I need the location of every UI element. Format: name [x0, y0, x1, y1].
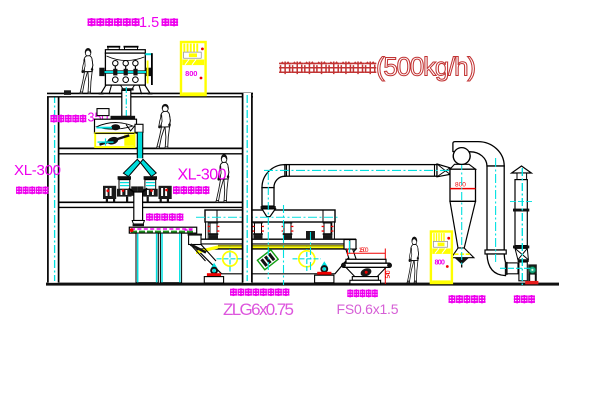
svg-text:800: 800 [455, 181, 466, 188]
svg-text:XL-300: XL-300 [14, 162, 61, 179]
svg-text:ZLG6x0.75: ZLG6x0.75 [223, 300, 294, 319]
svg-text:(500kg/h): (500kg/h) [376, 52, 476, 82]
svg-text:FS0.6x1.5: FS0.6x1.5 [337, 301, 399, 317]
svg-text:800: 800 [434, 258, 445, 267]
svg-text:540: 540 [386, 270, 392, 279]
svg-text:800: 800 [185, 69, 197, 78]
svg-text:1500: 1500 [359, 248, 370, 254]
svg-text:XL-300: XL-300 [178, 167, 227, 184]
svg-text:1.5: 1.5 [139, 15, 159, 31]
